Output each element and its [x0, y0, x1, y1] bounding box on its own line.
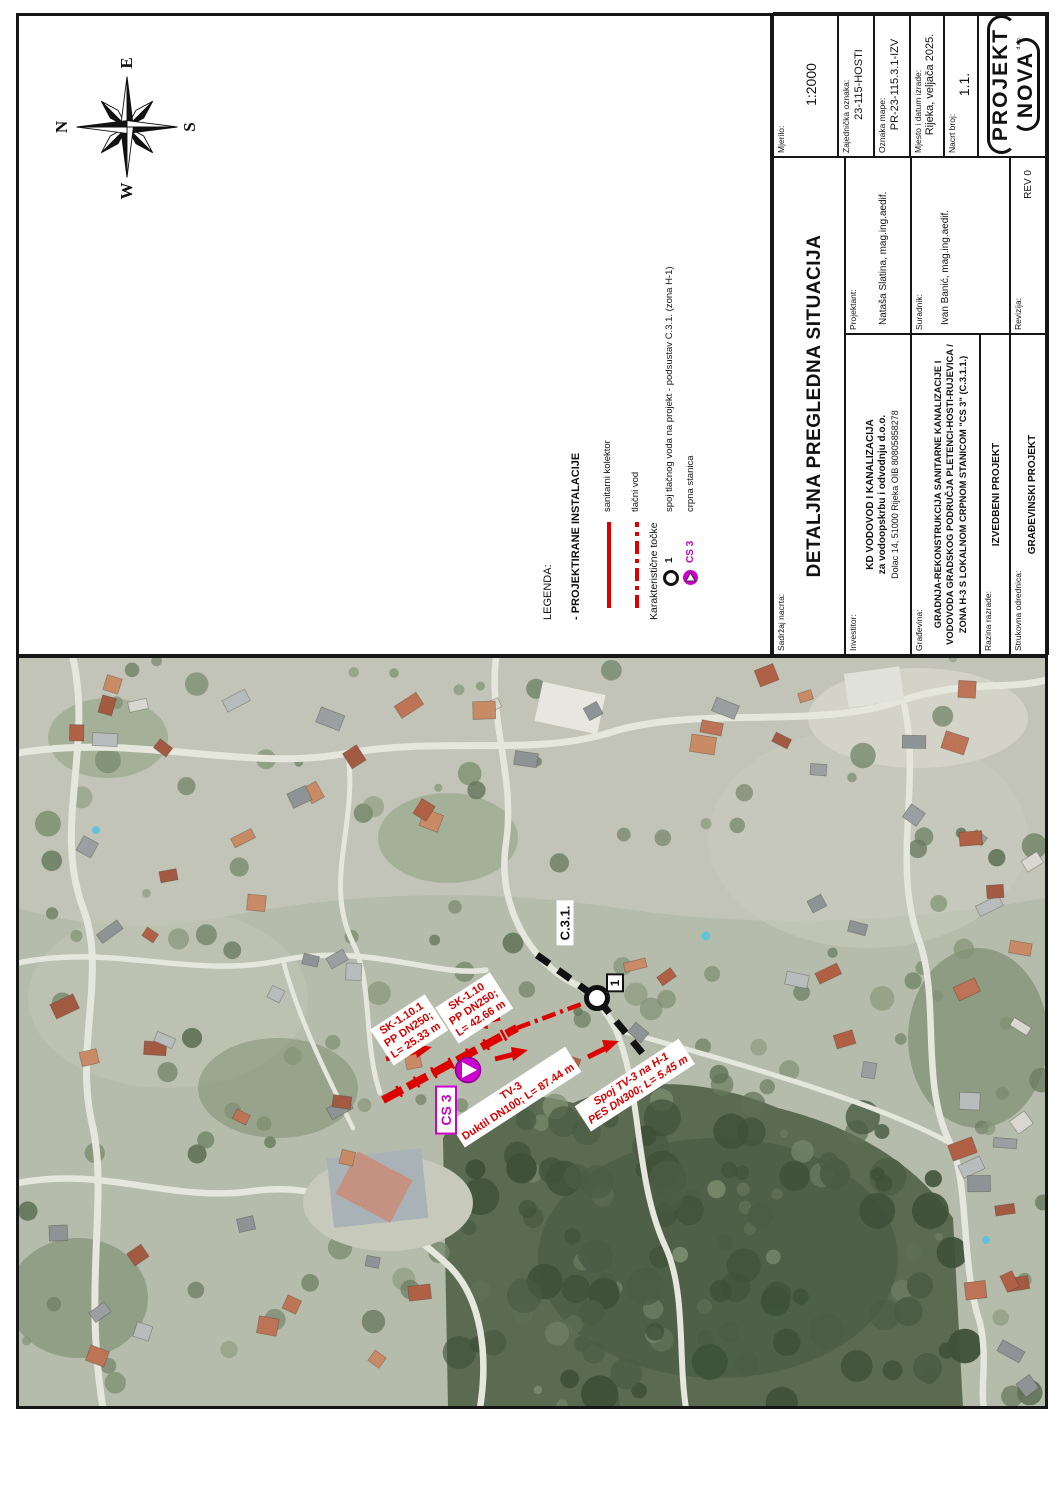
cell-common-code: Zajednička oznaka: 23-115-HOSTI [838, 12, 874, 157]
projekt-nova-logo: PROJEKT NOVAd.o.o. [983, 17, 1044, 152]
label-point-1: 1 [606, 974, 624, 993]
legend-section-installations: - PROJEKTIRANE INSTALACIJE [570, 245, 582, 620]
compass-north: N [52, 121, 72, 133]
cell-drawing-number: Nacrt broj: 1.1. [944, 12, 978, 157]
cell-collaborator: Suradnik: Ivan Banić, mag.ing.aedif. [911, 157, 1010, 334]
label-c31: C.3.1. [557, 901, 574, 946]
label-cs3: CS 3 [435, 1085, 457, 1134]
aerial-map: SK-1.10.1 PP DN250; L= 25.33 m SK-1.10 P… [18, 658, 1046, 1408]
compass-star-icon [72, 72, 182, 182]
cell-structure: Građevina: GRADNJA-REKONSTRUKCIJA SANITA… [911, 334, 980, 655]
cell-discipline: Strukovna odrednica: GRAĐEVINSKI PROJEKT [1010, 334, 1049, 655]
pump-station-icon [682, 569, 704, 586]
dashdot-red-line-sample [635, 522, 639, 608]
title-block: Sadržaj nacrta: DETALJNA PREGLEDNA SITUA… [770, 15, 1046, 658]
pump-station-symbol [456, 1058, 481, 1083]
revision-value: REV 0 [1023, 170, 1034, 199]
cell-drawing-title: Sadržaj nacrta: DETALJNA PREGLEDNA SITUA… [773, 157, 845, 655]
cell-scale: Mjerilo: 1:2000 [773, 12, 838, 157]
drawing-title: DETALJNA PREGLEDNA SITUACIJA [803, 235, 827, 578]
cell-map-code: Oznaka mape: PR-23-115.3.1-IZV [874, 12, 910, 157]
compass-west: W [117, 183, 137, 200]
scale-value: 1:2000 [803, 63, 821, 106]
cell-designer: Projektant: Nataša Slatina, mag.ing.aedi… [845, 157, 911, 334]
legend: LEGENDA: - PROJEKTIRANE INSTALACIJE sani… [540, 245, 705, 620]
solid-red-line-sample [607, 522, 611, 608]
cell-investor: Investitor: KD VODOVOD I KANALIZACIJA za… [845, 334, 911, 655]
cell-design-level: Razina razrade: IZVEDBENI PROJEKT [980, 334, 1010, 655]
legend-title: LEGENDA: [542, 245, 554, 620]
junction-point-marker [587, 988, 608, 1009]
cell-company-logo: PROJEKT NOVAd.o.o. [978, 12, 1049, 157]
map-top-border [18, 654, 1046, 658]
drawing-sheet: { "colors": {"annotation_red": "#dc0000"… [0, 0, 1058, 1497]
annotation-layer [18, 658, 1046, 1408]
compass-south: S [180, 122, 200, 131]
circle-marker-icon [663, 570, 679, 586]
cell-place-date: Mjesto i datum izrade: Rijeka, veljača 2… [910, 12, 944, 157]
legend-section-points: Karakteristične točke [648, 245, 660, 620]
compass-rose: N E S W [60, 60, 194, 194]
compass-east: E [117, 57, 137, 68]
pressure-pipe-line [517, 999, 595, 1028]
cell-revision: Revizija: REV 0 [1010, 157, 1049, 334]
